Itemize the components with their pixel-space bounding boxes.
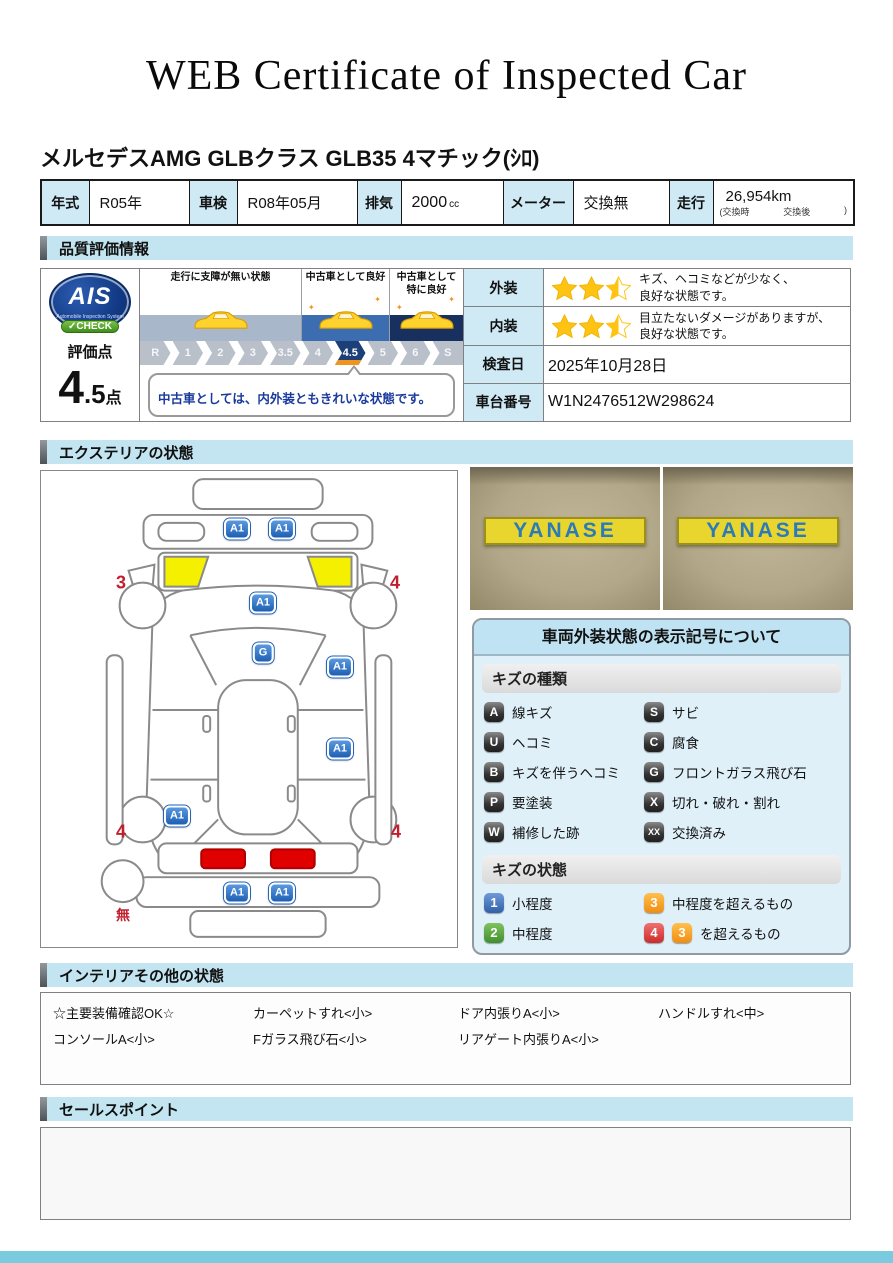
legend-item: 43を超えるもの bbox=[644, 923, 843, 943]
interior-item: ドア内張りA<小> bbox=[458, 1003, 658, 1029]
damage-marker-front-right-door: A1 bbox=[327, 657, 353, 678]
code-P-icon: P bbox=[484, 792, 504, 812]
section-header-sales: セールスポイント bbox=[40, 1097, 853, 1121]
section-bar-icon bbox=[40, 1097, 47, 1121]
grade-3-icon: 3 bbox=[672, 923, 692, 943]
step-4: 4 bbox=[303, 341, 334, 365]
legend-item: XX交換済み bbox=[644, 822, 843, 842]
car-icon bbox=[317, 309, 375, 332]
photo-2: YANASE bbox=[663, 467, 853, 610]
sparkle-icon: ✦ bbox=[396, 303, 403, 312]
legend-item: P要塗装 bbox=[484, 792, 644, 812]
interior-item bbox=[658, 1029, 838, 1055]
spec-table: 年式 R05年 車検 R08年05月 排気 2000 cc メーター 交換無 走… bbox=[40, 179, 855, 226]
legend-item: Uヘコミ bbox=[484, 732, 644, 752]
rating-scale: 走行に支障が無い状態 中古車として良好 ✦ ✦ bbox=[140, 269, 464, 421]
sparkle-icon: ✦ bbox=[308, 303, 315, 312]
step-S: S bbox=[433, 341, 464, 365]
damage-marker-rear-left-fender: A1 bbox=[164, 806, 190, 827]
spec-shaken-value: R08年05月 bbox=[237, 180, 357, 225]
legend-state-header: キズの状態 bbox=[482, 855, 841, 884]
legend-item: Bキズを伴うヘコミ bbox=[484, 762, 644, 782]
legend-item: 1小程度 bbox=[484, 893, 644, 913]
car-diagram: A1 A1 3 4 A1 G A1 A1 A1 4 4 A1 A1 無 bbox=[40, 470, 458, 948]
interior-item: コンソールA<小> bbox=[53, 1029, 253, 1055]
score-value: 4.5点 bbox=[41, 364, 139, 410]
interior-item: Fガラス飛び石<小> bbox=[253, 1029, 458, 1055]
legend-item: X切れ・破れ・割れ bbox=[644, 792, 843, 812]
quality-detail-table: 外装 キズ、ヘコミなどが少なく、 良好な状態です。 内装 bbox=[464, 269, 850, 421]
grade-3-icon: 3 bbox=[644, 893, 664, 913]
step-3-5: 3.5 bbox=[270, 341, 301, 365]
spec-mileage-label: 走行 bbox=[669, 180, 713, 225]
legend-item: Gフロントガラス飛び石 bbox=[644, 762, 843, 782]
damage-marker-rear-bumper-left: A1 bbox=[224, 883, 250, 904]
interior-item: リアゲート内張りA<小> bbox=[458, 1029, 658, 1055]
section-header-exterior: エクステリアの状態 bbox=[40, 440, 853, 464]
damage-marker-front-bumper-left: A1 bbox=[224, 519, 250, 540]
car-top-view bbox=[41, 471, 457, 947]
spec-meter-value: 交換無 bbox=[573, 180, 669, 225]
scale-zone-2: 中古車として良好 ✦ ✦ bbox=[302, 269, 390, 341]
legend-item: 3中程度を超えるもの bbox=[644, 893, 843, 913]
spec-meter-label: メーター bbox=[503, 180, 573, 225]
legend-item: W補修した跡 bbox=[484, 822, 644, 842]
car-icon bbox=[192, 309, 250, 332]
sales-point-box bbox=[40, 1127, 851, 1220]
certificate-page: WEB Certificate of Inspected Car メルセデスAM… bbox=[0, 0, 893, 1263]
check-icon: ✓CHECK bbox=[61, 320, 119, 333]
legend-item: C腐食 bbox=[644, 732, 843, 752]
sparkle-icon: ✦ bbox=[374, 295, 381, 304]
interior-item: ☆主要装備確認OK☆ bbox=[53, 1003, 253, 1029]
section-header-quality: 品質評価情報 bbox=[40, 236, 853, 260]
legend-item: 2中程度 bbox=[484, 923, 644, 943]
photo-1: YANASE bbox=[470, 467, 660, 610]
grade-2-icon: 2 bbox=[484, 923, 504, 943]
spec-displacement-label: 排気 bbox=[357, 180, 401, 225]
code-W-icon: W bbox=[484, 822, 504, 842]
interior-condition-box: ☆主要装備確認OK☆ カーペットすれ<小> ドア内張りA<小> ハンドルすれ<中… bbox=[40, 992, 851, 1085]
section-bar-icon bbox=[40, 440, 47, 464]
damage-marker-rear-bumper-right: A1 bbox=[269, 883, 295, 904]
code-X-icon: X bbox=[644, 792, 664, 812]
grade-1-icon: 1 bbox=[484, 893, 504, 913]
legend-item: Sサビ bbox=[644, 702, 843, 722]
score-label: 評価点 bbox=[41, 341, 139, 362]
rating-steps: R 1 2 3 3.5 4 4.5 5 6 S bbox=[140, 341, 463, 365]
star-rating bbox=[552, 276, 631, 300]
scale-zone-1: 走行に支障が無い状態 bbox=[140, 269, 302, 341]
spec-shaken-label: 車検 bbox=[189, 180, 237, 225]
chassis-number-row: 車台番号 W1N2476512W298624 bbox=[464, 384, 850, 421]
spare-tire-none-label: 無 bbox=[116, 905, 130, 925]
spec-mileage-value: 26,954km (交換時 交換後 ) bbox=[714, 187, 854, 218]
exterior-rating-row: 外装 キズ、ヘコミなどが少なく、 良好な状態です。 bbox=[464, 269, 850, 307]
interior-item: ハンドルすれ<中> bbox=[658, 1003, 838, 1029]
code-U-icon: U bbox=[484, 732, 504, 752]
car-icon bbox=[398, 309, 456, 332]
section-header-interior: インテリアその他の状態 bbox=[40, 963, 853, 987]
damage-marker-hood: A1 bbox=[250, 593, 276, 614]
yanase-sign: YANASE bbox=[484, 517, 646, 545]
ais-logo: AIS Automobile Inspection System ✓CHECK bbox=[49, 273, 131, 331]
code-C-icon: C bbox=[644, 732, 664, 752]
quality-panel: AIS Automobile Inspection System ✓CHECK … bbox=[40, 268, 851, 422]
code-B-icon: B bbox=[484, 762, 504, 782]
code-S-icon: S bbox=[644, 702, 664, 722]
step-3: 3 bbox=[238, 341, 269, 365]
damage-marker-front-bumper-right: A1 bbox=[269, 519, 295, 540]
code-G-icon: G bbox=[644, 762, 664, 782]
wheel-grade-front-left: 3 bbox=[116, 573, 126, 594]
inspection-date-row: 検査日 2025年10月28日 bbox=[464, 346, 850, 384]
spec-displacement-value: 2000 cc bbox=[402, 195, 503, 211]
comment-bubble: 中古車としては、内外装ともきれいな状態です。 bbox=[148, 373, 455, 417]
damage-marker-rear-right-door: A1 bbox=[327, 739, 353, 760]
step-4-5-selected: 4.5 bbox=[335, 341, 366, 365]
legend-title: 車両外装状態の表示記号について bbox=[474, 620, 849, 656]
wheel-grade-rear-left: 4 bbox=[116, 822, 126, 843]
page-title: WEB Certificate of Inspected Car bbox=[0, 52, 893, 100]
step-2: 2 bbox=[205, 341, 236, 365]
scale-zone-3: 中古車として 特に良好 ✦ ✦ bbox=[390, 269, 463, 341]
star-rating bbox=[552, 314, 631, 338]
code-XX-icon: XX bbox=[644, 822, 664, 842]
step-R: R bbox=[140, 341, 171, 365]
bottom-accent-bar bbox=[0, 1251, 893, 1263]
sparkle-icon: ✦ bbox=[448, 295, 455, 304]
code-A-icon: A bbox=[484, 702, 504, 722]
legend-item: A線キズ bbox=[484, 702, 644, 722]
section-bar-icon bbox=[40, 236, 47, 260]
vehicle-photos: YANASE YANASE bbox=[470, 467, 853, 610]
vehicle-name: メルセデスAMG GLBクラス GLB35 4マチック(ｼﾛ) bbox=[40, 141, 539, 173]
wheel-grade-front-right: 4 bbox=[390, 573, 400, 594]
section-bar-icon bbox=[40, 963, 47, 987]
wheel-grade-rear-right: 4 bbox=[391, 822, 401, 843]
step-1: 1 bbox=[173, 341, 204, 365]
grade-4-icon: 4 bbox=[644, 923, 664, 943]
yanase-sign: YANASE bbox=[677, 517, 839, 545]
interior-rating-row: 内装 目立たないダメージがありますが、 良好な状態です。 bbox=[464, 307, 850, 345]
damage-legend-panel: 車両外装状態の表示記号について キズの種類 A線キズ Sサビ Uヘコミ C腐食 … bbox=[472, 618, 851, 955]
spec-year-value: R05年 bbox=[89, 180, 189, 225]
spec-year-label: 年式 bbox=[41, 180, 89, 225]
interior-item: カーペットすれ<小> bbox=[253, 1003, 458, 1029]
ais-score-cell: AIS Automobile Inspection System ✓CHECK … bbox=[41, 269, 140, 421]
step-6: 6 bbox=[400, 341, 431, 365]
legend-kind-header: キズの種類 bbox=[482, 664, 841, 693]
damage-marker-windshield: G bbox=[253, 643, 274, 664]
step-5: 5 bbox=[368, 341, 399, 365]
